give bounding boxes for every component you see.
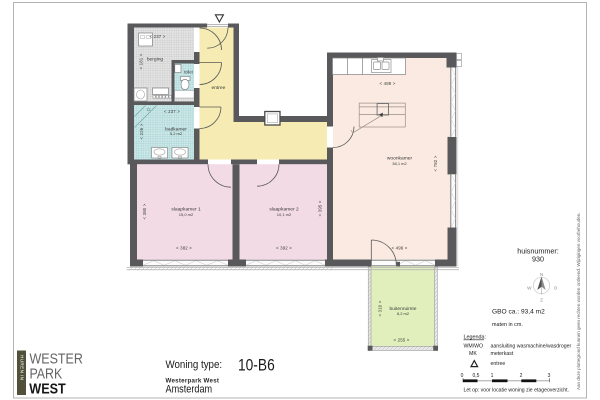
svg-text:0: 0 xyxy=(461,373,464,379)
svg-text:O: O xyxy=(554,285,558,290)
svg-text:MK: MK xyxy=(469,351,477,357)
svg-text:15,0 m2: 15,0 m2 xyxy=(179,212,194,217)
svg-text:entree: entree xyxy=(491,361,506,367)
svg-text:meterkast: meterkast xyxy=(491,351,514,357)
svg-text:Let op: voor locatie woning: Let op: voor locatie woning zie etageove… xyxy=(464,388,569,394)
svg-text:GBO ca.: 93,4 m2: GBO ca.: 93,4 m2 xyxy=(492,308,545,315)
svg-text:aansluiting wasmachine/wasdrog: aansluiting wasmachine/wasdroger xyxy=(491,344,572,350)
svg-text:PARK: PARK xyxy=(30,365,63,381)
svg-text:berging: berging xyxy=(147,57,164,63)
svg-text:38,1 m2: 38,1 m2 xyxy=(392,161,407,166)
svg-text:3: 3 xyxy=(548,373,551,379)
svg-text:N: N xyxy=(540,272,543,277)
svg-text:< 310 >: < 310 > xyxy=(378,300,383,316)
svg-text:< 395 >: < 395 > xyxy=(318,200,323,216)
svg-text:Aan deze plattegrond kunnen ge: Aan deze plattegrond kunnen geen rechten… xyxy=(576,212,581,390)
svg-text:HUREN IN: HUREN IN xyxy=(19,355,24,380)
svg-text:< 181 >: < 181 > xyxy=(139,53,144,69)
svg-text:W: W xyxy=(527,285,532,290)
svg-text:WM/WO: WM/WO xyxy=(464,344,484,350)
svg-text:2: 2 xyxy=(520,373,523,379)
svg-text:maten in cm.: maten in cm. xyxy=(492,322,523,328)
svg-text:10,1 m2: 10,1 m2 xyxy=(277,212,292,217)
svg-text:< 255 >: < 255 > xyxy=(394,338,410,343)
svg-text:930: 930 xyxy=(532,255,544,264)
svg-text:0,5: 0,5 xyxy=(473,373,480,379)
svg-text:< 499 >: < 499 > xyxy=(392,245,408,250)
svg-text:entree: entree xyxy=(211,85,225,91)
svg-text:< 237 >: < 237 > xyxy=(150,34,166,39)
svg-text:< 380 >: < 380 > xyxy=(142,203,147,219)
svg-text:Amsterdam: Amsterdam xyxy=(166,384,213,396)
svg-text:1: 1 xyxy=(491,373,494,379)
svg-text:toilet: toilet xyxy=(184,70,194,75)
svg-text:Z: Z xyxy=(540,297,543,302)
svg-text:WESTER: WESTER xyxy=(30,350,84,366)
svg-text:< 782 >: < 782 > xyxy=(433,155,438,171)
svg-text:< 382 >: < 382 > xyxy=(176,245,192,250)
svg-text:< 237 >: < 237 > xyxy=(164,109,180,114)
svg-text:Woning type:: Woning type: xyxy=(166,360,223,372)
svg-text:5,2 m2: 5,2 m2 xyxy=(170,131,183,136)
svg-text:WEST: WEST xyxy=(29,381,66,397)
svg-text:< 392 >: < 392 > xyxy=(276,245,292,250)
svg-text:8,2 m2: 8,2 m2 xyxy=(397,311,410,316)
svg-text:10-B6: 10-B6 xyxy=(238,356,275,374)
svg-text:< 489 >: < 489 > xyxy=(380,81,396,86)
svg-text:< 226 >: < 226 > xyxy=(139,123,144,139)
